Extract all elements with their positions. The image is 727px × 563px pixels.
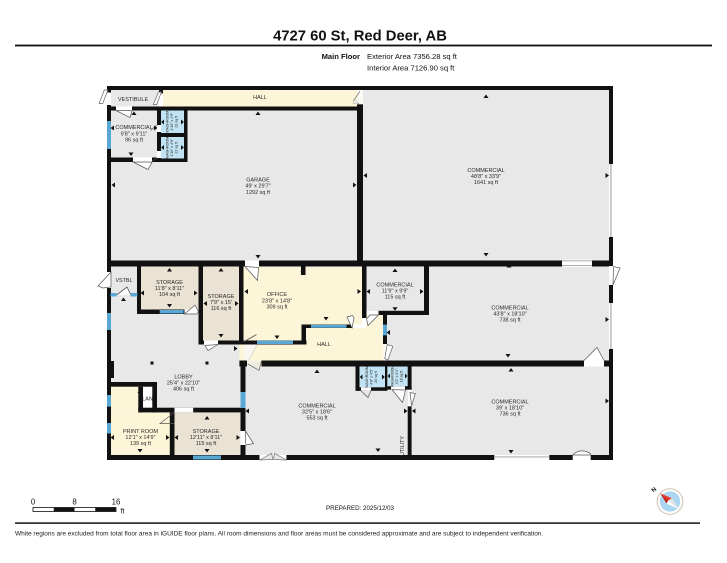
svg-text:1641 sq ft: 1641 sq ft xyxy=(474,180,499,186)
svg-text:WASHROOM: WASHROOM xyxy=(166,137,170,159)
svg-text:COMMERCIAL: COMMERCIAL xyxy=(376,282,413,288)
svg-text:UTILITY: UTILITY xyxy=(400,436,406,456)
svg-text:23'8" x 14'8": 23'8" x 14'8" xyxy=(262,298,292,304)
svg-text:39' x 18'10": 39' x 18'10" xyxy=(496,406,524,412)
svg-text:COMMERCIAL: COMMERCIAL xyxy=(491,399,528,405)
svg-text:48'8" x 33'9": 48'8" x 33'9" xyxy=(471,174,501,180)
svg-text:8: 8 xyxy=(72,498,76,507)
svg-text:9'8" x 9'11": 9'8" x 9'11" xyxy=(121,131,148,137)
svg-text:12'11" x 8'11": 12'11" x 8'11" xyxy=(190,435,222,441)
svg-text:STORAGE: STORAGE xyxy=(193,429,220,435)
svg-text:25'4" x 22'10": 25'4" x 22'10" xyxy=(167,381,200,387)
svg-text:4'2" x 4'4": 4'2" x 4'4" xyxy=(395,368,399,384)
svg-text:HALL: HALL xyxy=(317,342,331,348)
svg-text:11'9" x 9'9": 11'9" x 9'9" xyxy=(382,289,409,295)
svg-text:COMMERCIAL: COMMERCIAL xyxy=(115,125,152,131)
svg-text:WASHROOM: WASHROOM xyxy=(365,366,369,388)
svg-text:22 sq ft: 22 sq ft xyxy=(175,142,179,154)
svg-text:23 sq ft: 23 sq ft xyxy=(175,116,179,128)
svg-text:VSTBL: VSTBL xyxy=(115,278,132,284)
svg-text:VESTIBULE: VESTIBULE xyxy=(118,97,149,103)
svg-text:White regions are excluded fro: White regions are excluded from total fl… xyxy=(15,531,543,538)
svg-text:115 sq ft: 115 sq ft xyxy=(196,441,217,447)
svg-text:WASHROOM: WASHROOM xyxy=(391,366,395,388)
svg-text:553 sq ft: 553 sq ft xyxy=(306,416,328,422)
svg-text:4'8" x 4'5": 4'8" x 4'5" xyxy=(370,368,374,384)
svg-text:49' x 29'7": 49' x 29'7" xyxy=(245,184,270,190)
svg-text:104 sq ft: 104 sq ft xyxy=(159,292,181,298)
svg-text:Interior Area 7126.90 sq ft: Interior Area 7126.90 sq ft xyxy=(367,64,455,73)
svg-text:STORAGE: STORAGE xyxy=(208,294,235,300)
svg-text:16: 16 xyxy=(112,498,121,507)
svg-text:18 sq ft: 18 sq ft xyxy=(400,371,404,383)
svg-text:116 sq ft: 116 sq ft xyxy=(211,306,232,312)
svg-text:Main Floor: Main Floor xyxy=(322,52,360,61)
svg-text:0: 0 xyxy=(31,498,36,507)
svg-text:PRINT ROOM: PRINT ROOM xyxy=(123,429,158,435)
svg-text:139 sq ft: 139 sq ft xyxy=(130,441,152,447)
svg-text:LAN: LAN xyxy=(142,397,153,403)
svg-text:COMMERCIAL: COMMERCIAL xyxy=(467,168,504,174)
svg-text:PREPARED: 2025/12/03: PREPARED: 2025/12/03 xyxy=(326,505,395,512)
svg-text:115 sq ft: 115 sq ft xyxy=(385,295,406,301)
svg-text:736 sq ft: 736 sq ft xyxy=(499,412,521,418)
svg-text:12'1" x 14'9": 12'1" x 14'9" xyxy=(125,435,155,441)
svg-text:11'8" x 8'11": 11'8" x 8'11" xyxy=(155,286,184,292)
svg-text:309 sq ft: 309 sq ft xyxy=(266,305,288,311)
svg-text:406 sq ft: 406 sq ft xyxy=(173,387,195,393)
svg-text:96 sq ft: 96 sq ft xyxy=(125,138,144,144)
svg-text:32'5" x 18'6": 32'5" x 18'6" xyxy=(302,410,332,416)
svg-text:GARAGE: GARAGE xyxy=(246,177,270,183)
svg-text:COMMERCIAL: COMMERCIAL xyxy=(298,403,335,409)
svg-text:4'10" x 4'9": 4'10" x 4'9" xyxy=(170,112,174,130)
svg-text:ft: ft xyxy=(121,507,125,516)
svg-text:Exterior Area 7356.28 sq ft: Exterior Area 7356.28 sq ft xyxy=(367,52,458,61)
svg-text:HALL: HALL xyxy=(253,95,267,101)
svg-text:43'8" x 18'10": 43'8" x 18'10" xyxy=(493,312,526,318)
svg-text:7'9" x 15': 7'9" x 15' xyxy=(210,300,232,306)
svg-text:STORAGE: STORAGE xyxy=(156,280,183,286)
svg-text:4'10" x 4'6": 4'10" x 4'6" xyxy=(170,138,174,156)
svg-text:WASHROOM: WASHROOM xyxy=(166,111,170,133)
svg-text:OFFICE: OFFICE xyxy=(267,292,287,298)
svg-text:20 sq ft: 20 sq ft xyxy=(374,371,378,383)
svg-text:738 sq ft: 738 sq ft xyxy=(499,318,521,324)
svg-text:1292 sq ft: 1292 sq ft xyxy=(246,190,271,196)
svg-text:COMMERCIAL: COMMERCIAL xyxy=(491,305,528,311)
svg-text:4727 60 St, Red Deer, AB: 4727 60 St, Red Deer, AB xyxy=(273,29,447,45)
svg-text:LOBBY: LOBBY xyxy=(174,374,193,380)
